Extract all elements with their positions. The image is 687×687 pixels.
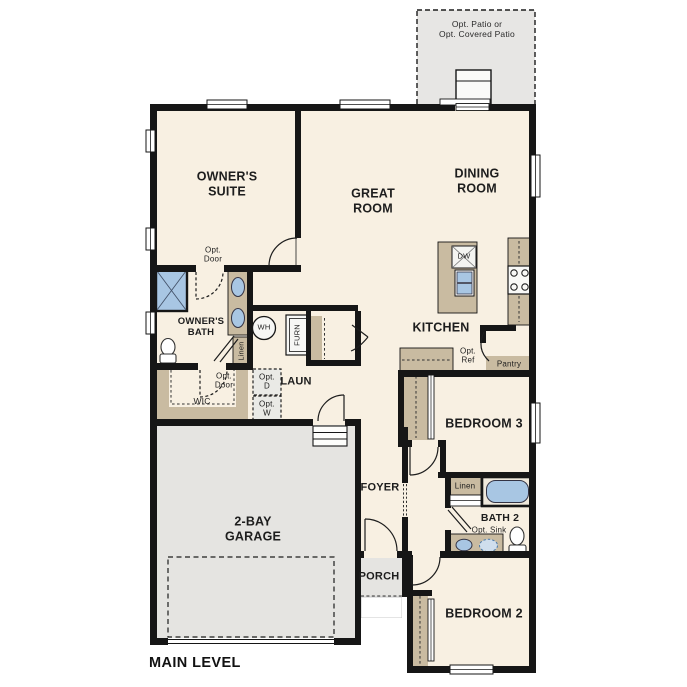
window [340,100,390,109]
floor-plan: Opt. Patio or Opt. Covered Patio OWNER'S… [0,0,687,687]
label-opt-dryer: Opt. D [259,373,275,392]
label-opt-door-suite: Opt. Door [204,246,222,265]
wic-shelf-right [236,370,248,419]
bath2-linen-door [450,495,481,506]
label-owners-bath: OWNER'S BATH [178,316,224,338]
owners-toilet [160,339,176,364]
label-bath2: BATH 2 [481,512,519,524]
wic-shelf-bottom [157,407,248,419]
bath2-optional-sink [480,539,498,551]
label-foyer: FOYER [361,482,400,495]
range-cooktop [508,266,531,294]
coat-closet-shelf [311,316,322,360]
label-linen-owners: Linen [238,341,247,360]
window [450,665,493,674]
label-linen-bath2: Linen [455,481,476,490]
bedroom2-closet-door [428,599,434,661]
label-dining-room: DINING ROOM [455,166,500,196]
window [146,312,155,334]
shower [156,270,187,311]
label-patio: Opt. Patio or Opt. Covered Patio [439,19,515,39]
label-owners-suite: OWNER'S SUITE [197,169,258,199]
label-garage: 2-BAY GARAGE [225,514,281,544]
label-pantry: Pantry [497,359,521,368]
label-great-room: GREAT ROOM [351,186,395,216]
bathtub [482,477,533,506]
label-opt-ref: Opt. Ref [460,347,476,366]
island-sink [455,270,474,296]
window [146,130,155,152]
window [146,228,155,250]
porch-steps [361,597,402,618]
window [207,100,247,109]
label-bedroom3: BEDROOM 3 [445,417,523,432]
label-laundry: LAUN [280,376,311,389]
garage-entry-steps [313,426,347,446]
label-water-heater: WH [258,324,271,333]
bath2-toilet [509,527,526,555]
label-opt-washer: Opt. W [259,400,275,419]
label-bedroom2: BEDROOM 2 [445,607,523,622]
bedroom2-closet-shelf [413,593,428,666]
floor-plan-drawing [0,0,687,687]
plan-title: MAIN LEVEL [149,655,241,671]
window [531,155,540,197]
label-opt-door-wic: Opt. Door [215,372,233,391]
window [531,403,540,443]
label-kitchen: KITCHEN [413,321,470,336]
garage-door [168,638,334,645]
label-opt-sink: Opt. Sink [472,525,507,534]
label-porch: PORCH [359,571,400,584]
label-wic: WIC [193,396,210,406]
label-dishwasher: DW [458,253,471,262]
label-furnace: FURN [294,324,303,346]
bedroom3-closet-door [428,375,434,439]
bath2-sink [456,539,472,551]
